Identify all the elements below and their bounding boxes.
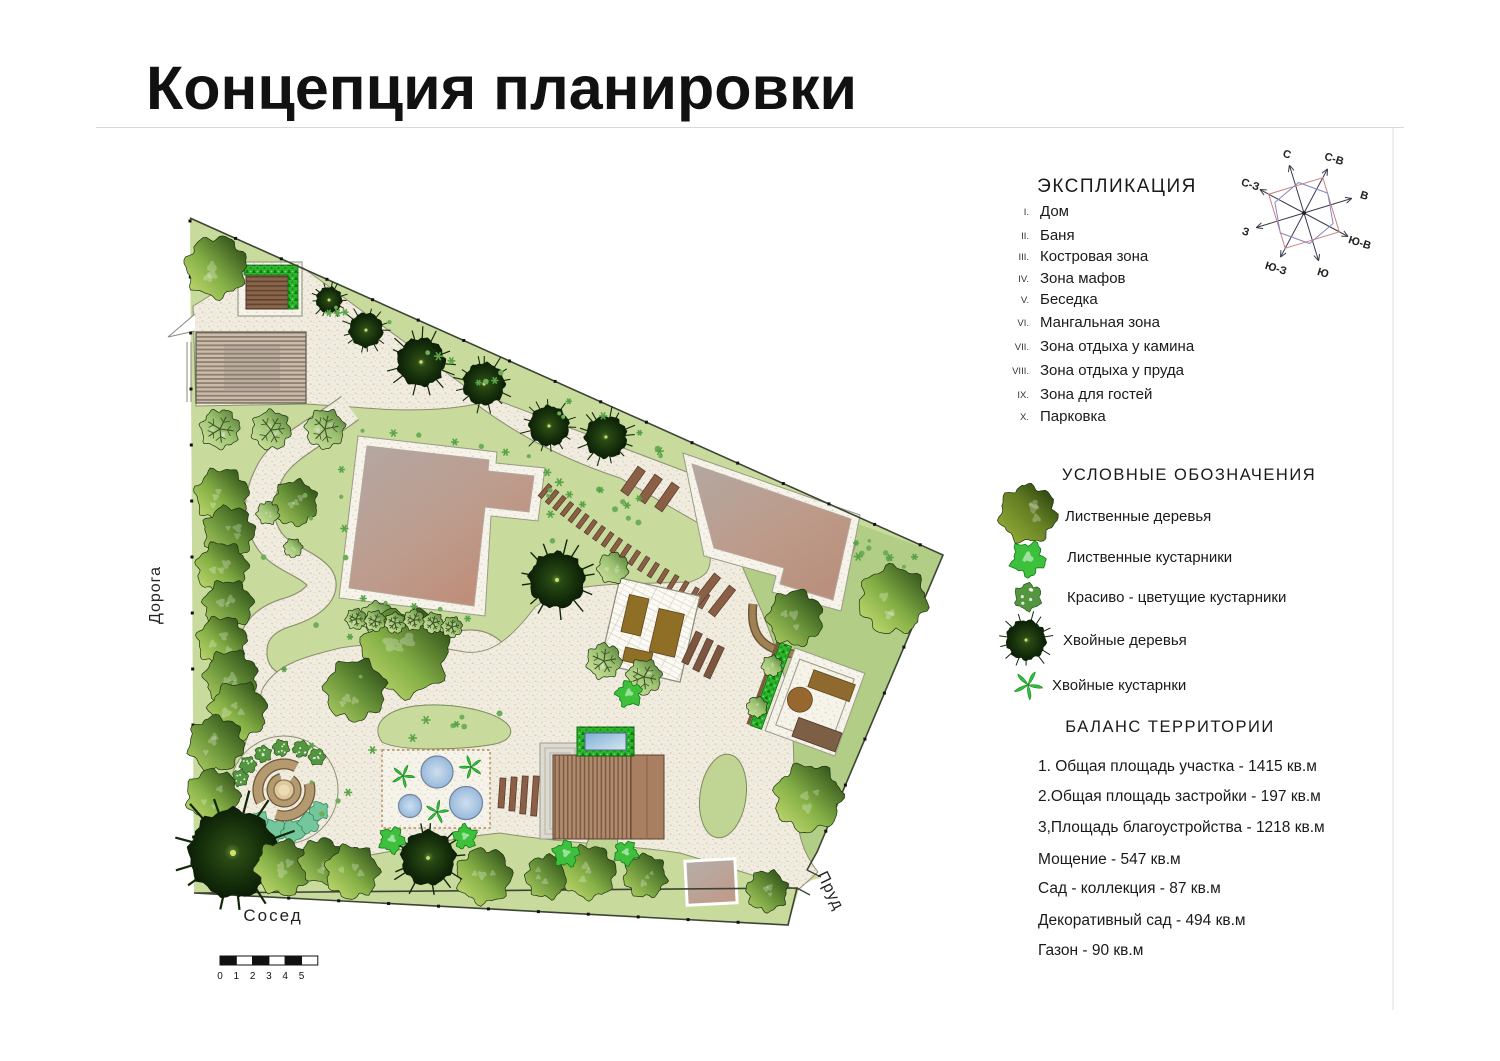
svg-text:Газон - 90 кв.м: Газон - 90 кв.м [1038,942,1143,959]
svg-text:Мощение - 547 кв.м: Мощение - 547 кв.м [1038,851,1181,868]
svg-text:2: 2 [250,971,256,982]
svg-text:Беседка: Беседка [1040,291,1098,308]
svg-text:4: 4 [282,971,288,982]
svg-text:Декоративный сад - 494 кв.м: Декоративный сад - 494 кв.м [1038,912,1246,929]
svg-text:БАЛАНС ТЕРРИТОРИИ: БАЛАНС ТЕРРИТОРИИ [1065,718,1274,736]
svg-text:УСЛОВНЫЕ ОБОЗНАЧЕНИЯ: УСЛОВНЫЕ ОБОЗНАЧЕНИЯ [1062,466,1316,484]
svg-text:V.: V. [1021,295,1029,306]
svg-text:I.: I. [1024,207,1029,218]
svg-text:II.: II. [1021,231,1029,242]
svg-text:VII.: VII. [1015,342,1029,353]
svg-text:3,Площадь благоустройства - 12: 3,Площадь благоустройства - 1218 кв.м [1038,819,1325,836]
svg-text:Хвойные деревья: Хвойные деревья [1063,632,1187,649]
svg-text:Зона отдыха у камина: Зона отдыха у камина [1040,338,1195,355]
svg-text:IV.: IV. [1018,274,1029,285]
svg-text:Зона мафов: Зона мафов [1040,270,1126,287]
svg-text:Сосед: Сосед [243,906,302,925]
svg-text:0: 0 [217,971,223,982]
svg-text:X.: X. [1020,412,1029,423]
svg-text:Зона отдыха у пруда: Зона отдыха у пруда [1040,362,1185,379]
svg-text:IX.: IX. [1017,390,1029,401]
svg-text:2.Общая площадь застройки - 19: 2.Общая площадь застройки - 197 кв.м [1038,788,1321,805]
svg-text:Сад - коллекция - 87 кв.м: Сад - коллекция - 87 кв.м [1038,880,1221,897]
svg-text:5: 5 [299,971,305,982]
svg-text:VIII.: VIII. [1012,366,1029,377]
svg-text:Хвойные кустарнки: Хвойные кустарнки [1052,677,1186,694]
svg-text:Баня: Баня [1040,227,1075,244]
svg-text:Парковка: Парковка [1040,408,1106,425]
svg-text:Мангальная зона: Мангальная зона [1040,314,1161,331]
svg-text:1: 1 [234,971,240,982]
svg-text:ЭКСПЛИКАЦИЯ: ЭКСПЛИКАЦИЯ [1037,176,1197,197]
svg-text:1. Общая площадь участка - 141: 1. Общая площадь участка - 1415 кв.м [1038,758,1317,775]
svg-text:Зона для гостей: Зона для гостей [1040,386,1152,403]
svg-text:Красиво - цветущие кустарники: Красиво - цветущие кустарники [1067,589,1286,606]
svg-text:Концепция планировки: Концепция планировки [146,54,857,122]
svg-text:Костровая зона: Костровая зона [1040,248,1149,265]
svg-text:Дорога: Дорога [147,566,164,624]
svg-text:III.: III. [1018,252,1029,263]
svg-text:Лиственные деревья: Лиственные деревья [1065,508,1211,525]
svg-text:VI.: VI. [1017,318,1029,329]
svg-text:Лиственные кустарники: Лиственные кустарники [1067,549,1232,566]
svg-text:Дом: Дом [1040,203,1069,220]
svg-text:3: 3 [266,971,272,982]
